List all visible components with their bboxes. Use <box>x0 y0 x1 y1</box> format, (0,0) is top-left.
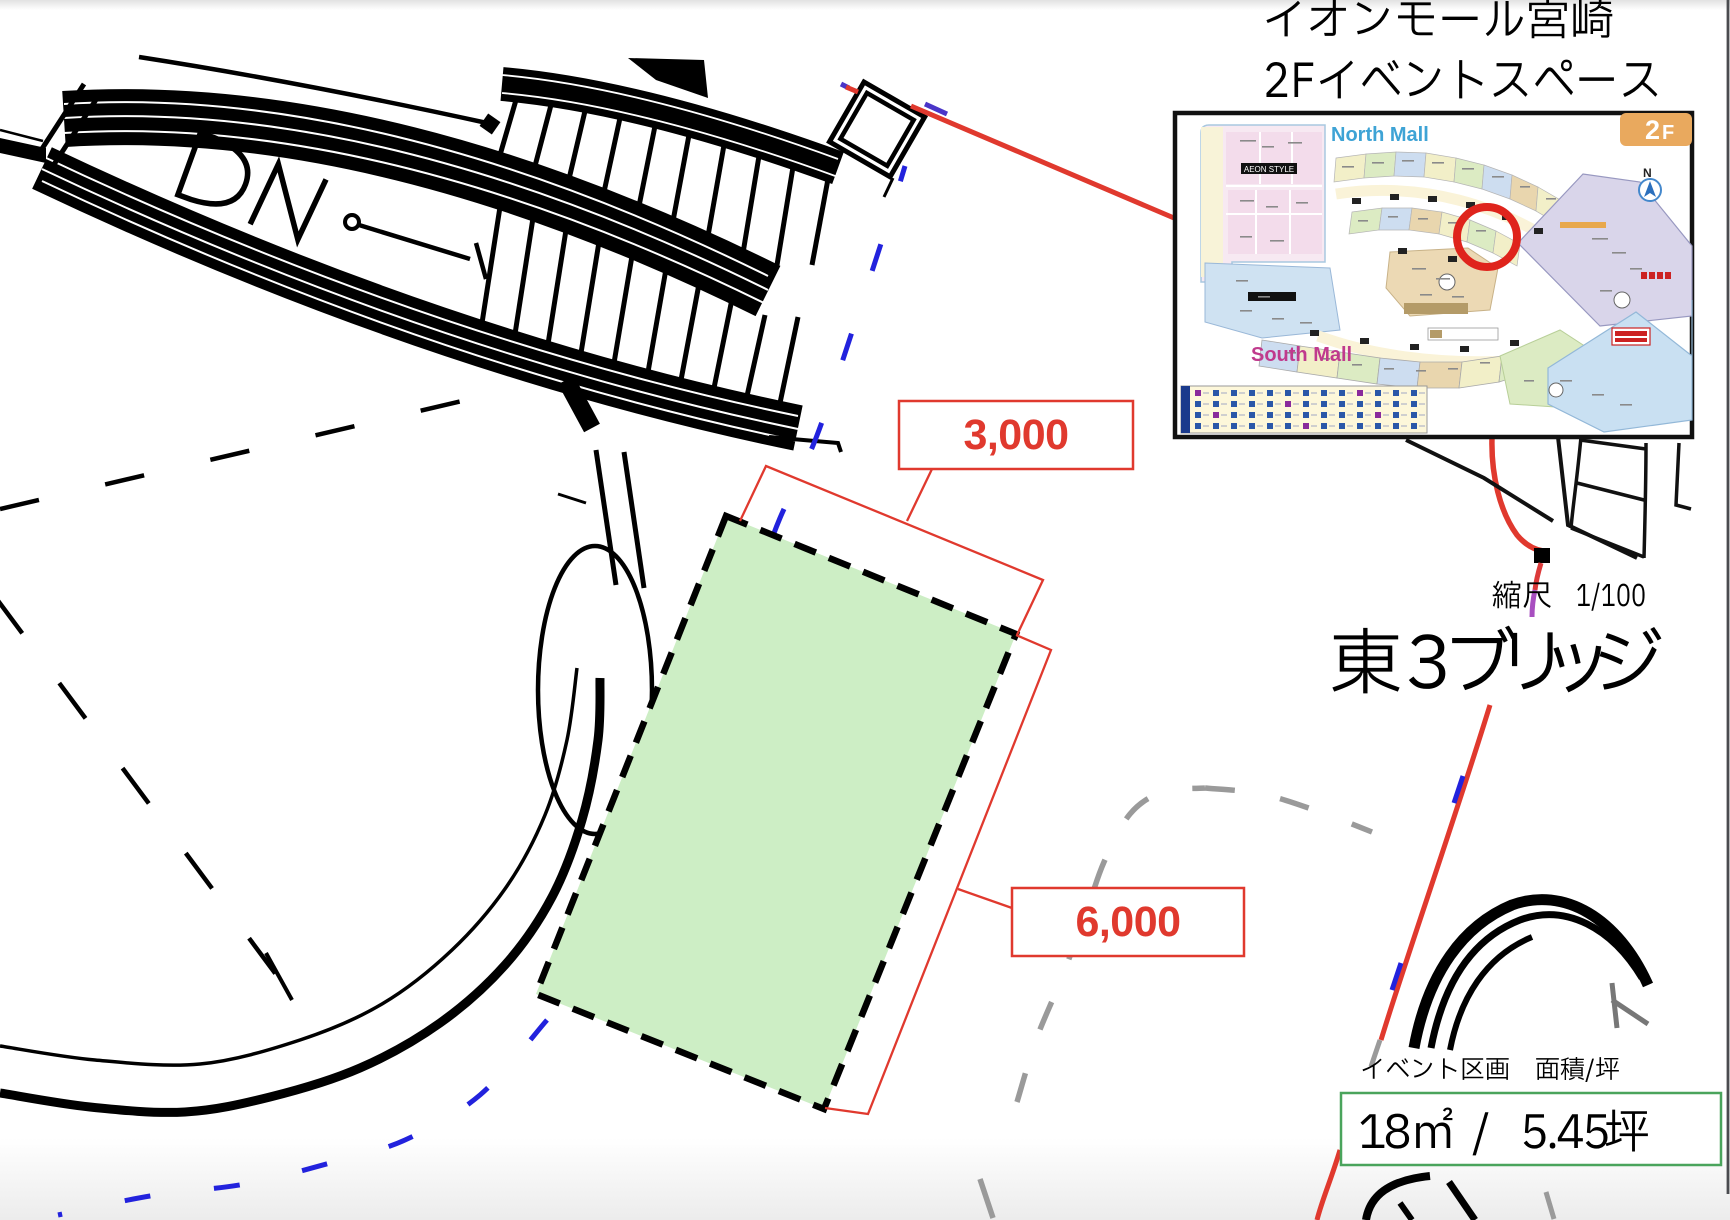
svg-text:N: N <box>1643 166 1652 180</box>
svg-text:North Mall: North Mall <box>1331 124 1429 146</box>
svg-text:South Mall: South Mall <box>1251 344 1352 366</box>
svg-text:AEON STYLE: AEON STYLE <box>1244 165 1294 174</box>
svg-text:2: 2 <box>1645 115 1660 145</box>
svg-text:3,000: 3,000 <box>963 411 1068 459</box>
svg-text:6,000: 6,000 <box>1075 898 1180 946</box>
svg-text:F: F <box>1662 122 1674 144</box>
